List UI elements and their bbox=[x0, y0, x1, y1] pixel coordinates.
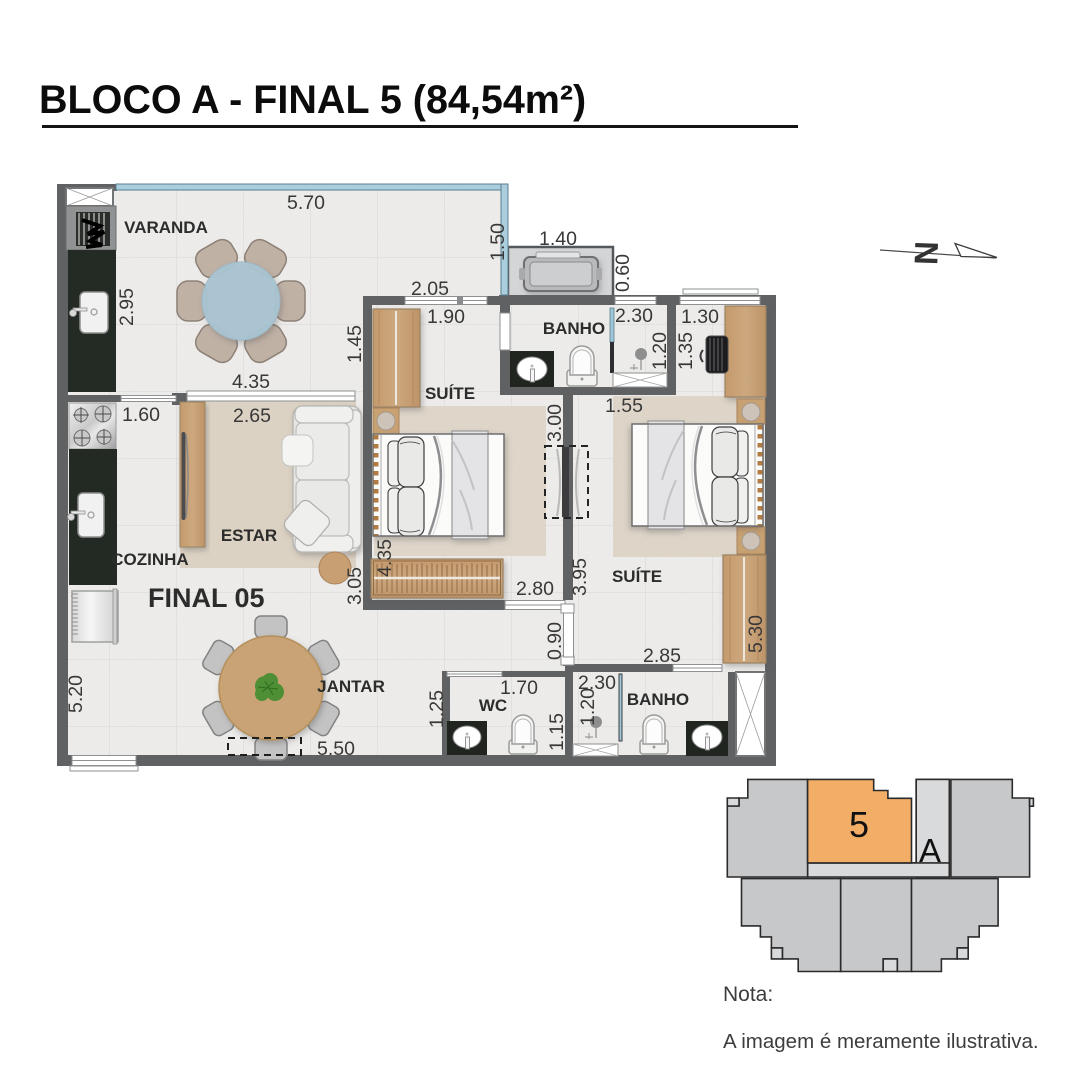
svg-text:5: 5 bbox=[849, 804, 869, 845]
svg-text:1.40: 1.40 bbox=[539, 228, 577, 250]
svg-text:5.20: 5.20 bbox=[65, 675, 87, 713]
svg-text:4.35: 4.35 bbox=[374, 539, 396, 577]
svg-text:1.25: 1.25 bbox=[426, 690, 448, 728]
svg-text:2.95: 2.95 bbox=[116, 288, 138, 326]
svg-text:2.80: 2.80 bbox=[516, 578, 554, 600]
svg-text:5.50: 5.50 bbox=[317, 738, 355, 760]
svg-text:5.30: 5.30 bbox=[745, 615, 767, 653]
svg-text:N: N bbox=[908, 240, 946, 265]
svg-text:2.05: 2.05 bbox=[411, 278, 449, 300]
svg-text:3.95: 3.95 bbox=[569, 558, 591, 596]
svg-text:BANHO: BANHO bbox=[627, 690, 689, 709]
svg-text:5.70: 5.70 bbox=[287, 192, 325, 214]
svg-text:1.55: 1.55 bbox=[605, 395, 643, 417]
svg-text:0.60: 0.60 bbox=[612, 254, 634, 292]
svg-text:Nota:: Nota: bbox=[723, 983, 773, 1006]
svg-text:A imagem é meramente ilustrati: A imagem é meramente ilustrativa. bbox=[723, 1030, 1039, 1053]
svg-text:WC: WC bbox=[479, 696, 507, 715]
svg-text:FINAL 05: FINAL 05 bbox=[148, 583, 265, 613]
svg-text:A: A bbox=[919, 832, 941, 869]
svg-text:BANHO: BANHO bbox=[543, 319, 605, 338]
svg-text:1.45: 1.45 bbox=[344, 325, 366, 363]
svg-text:SUÍTE: SUÍTE bbox=[425, 384, 475, 403]
svg-text:3.05: 3.05 bbox=[344, 567, 366, 605]
svg-text:1.30: 1.30 bbox=[681, 306, 719, 328]
svg-text:1.20: 1.20 bbox=[577, 688, 599, 726]
svg-text:2.30: 2.30 bbox=[615, 305, 653, 327]
svg-text:1.35: 1.35 bbox=[675, 332, 697, 370]
svg-text:ESTAR: ESTAR bbox=[221, 526, 277, 545]
svg-text:1.50: 1.50 bbox=[487, 223, 509, 261]
svg-text:0.90: 0.90 bbox=[544, 622, 566, 660]
svg-text:2.65: 2.65 bbox=[233, 405, 271, 427]
svg-text:JANTAR: JANTAR bbox=[317, 677, 385, 696]
svg-text:2.85: 2.85 bbox=[643, 645, 681, 667]
svg-text:COZINHA: COZINHA bbox=[111, 550, 188, 569]
svg-text:SUÍTE: SUÍTE bbox=[612, 567, 662, 586]
svg-text:VARANDA: VARANDA bbox=[124, 218, 208, 237]
svg-text:4.35: 4.35 bbox=[232, 371, 270, 393]
svg-text:1.60: 1.60 bbox=[122, 404, 160, 426]
svg-text:1.15: 1.15 bbox=[546, 713, 568, 751]
svg-text:1.90: 1.90 bbox=[427, 306, 465, 328]
svg-text:1.20: 1.20 bbox=[649, 332, 671, 370]
svg-text:BLOCO A - FINAL 5 (84,54m²): BLOCO A - FINAL 5 (84,54m²) bbox=[39, 78, 586, 122]
svg-text:3.00: 3.00 bbox=[544, 404, 566, 442]
